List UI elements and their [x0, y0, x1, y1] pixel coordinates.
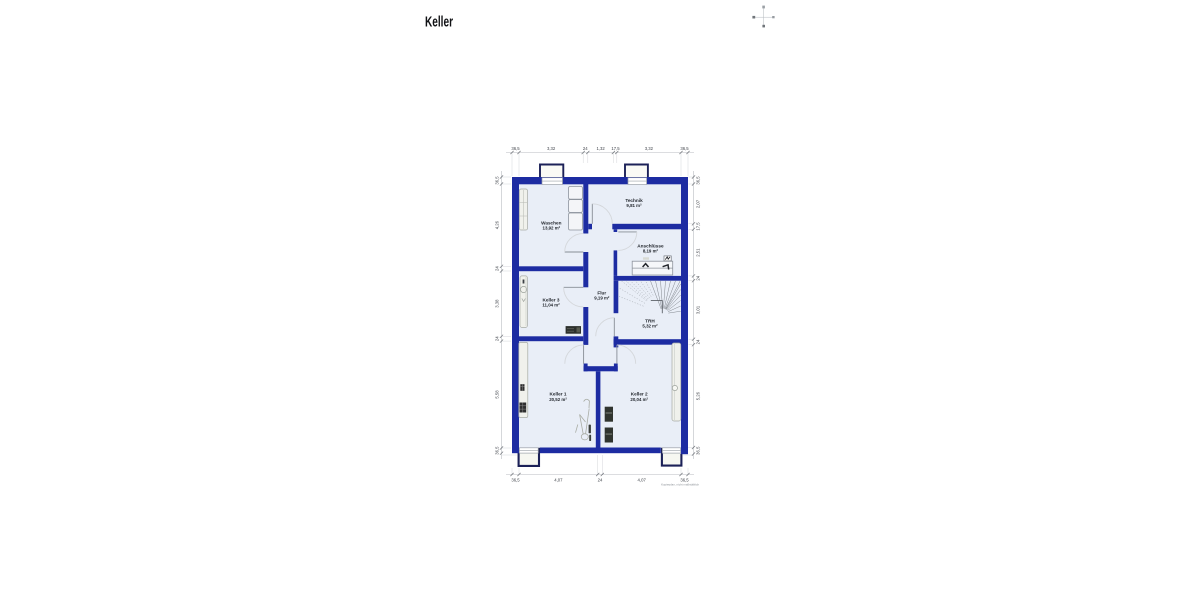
svg-text:24: 24	[696, 275, 701, 280]
svg-text:3,01: 3,01	[696, 305, 701, 314]
svg-text:36,5: 36,5	[511, 478, 520, 483]
svg-text:3,38: 3,38	[495, 299, 500, 308]
svg-text:4,07: 4,07	[554, 478, 563, 483]
svg-text:20,52 m²: 20,52 m²	[549, 397, 567, 402]
svg-text:Kopierplan, nicht maßstäblich: Kopierplan, nicht maßstäblich	[661, 483, 699, 487]
svg-text:24: 24	[598, 478, 603, 483]
svg-text:17,5: 17,5	[696, 222, 701, 231]
svg-text:5,32 m²: 5,32 m²	[642, 324, 658, 329]
svg-text:24: 24	[696, 339, 701, 344]
svg-text:24: 24	[583, 146, 588, 151]
svg-text:2,51: 2,51	[696, 248, 701, 257]
svg-text:Keller: Keller	[425, 15, 453, 31]
svg-text:5,58: 5,58	[495, 390, 500, 399]
svg-text:9,81 m²: 9,81 m²	[626, 203, 642, 208]
svg-text:24: 24	[495, 266, 500, 271]
svg-text:11,04 m²: 11,04 m²	[542, 303, 560, 308]
svg-text:36,5: 36,5	[511, 146, 520, 151]
svg-text:13,92 m²: 13,92 m²	[543, 225, 561, 230]
svg-text:20,04 m²: 20,04 m²	[630, 397, 648, 402]
svg-text:24: 24	[495, 336, 500, 341]
svg-text:1,32: 1,32	[596, 146, 605, 151]
svg-text:3,32: 3,32	[547, 146, 556, 151]
svg-text:17,5: 17,5	[611, 146, 620, 151]
svg-text:4,26: 4,26	[495, 220, 500, 229]
svg-text:4,07: 4,07	[638, 478, 647, 483]
svg-text:36,5: 36,5	[696, 446, 701, 455]
svg-text:36,5: 36,5	[696, 176, 701, 185]
svg-text:8,19 m²: 8,19 m²	[643, 249, 659, 254]
svg-text:5,26: 5,26	[696, 391, 701, 400]
svg-text:36,5: 36,5	[680, 146, 689, 151]
svg-text:36,5: 36,5	[495, 446, 500, 455]
svg-text:2,07: 2,07	[696, 199, 701, 208]
svg-text:36,5: 36,5	[495, 176, 500, 185]
svg-text:9,19 m²: 9,19 m²	[594, 296, 610, 301]
svg-text:3,32: 3,32	[645, 146, 654, 151]
